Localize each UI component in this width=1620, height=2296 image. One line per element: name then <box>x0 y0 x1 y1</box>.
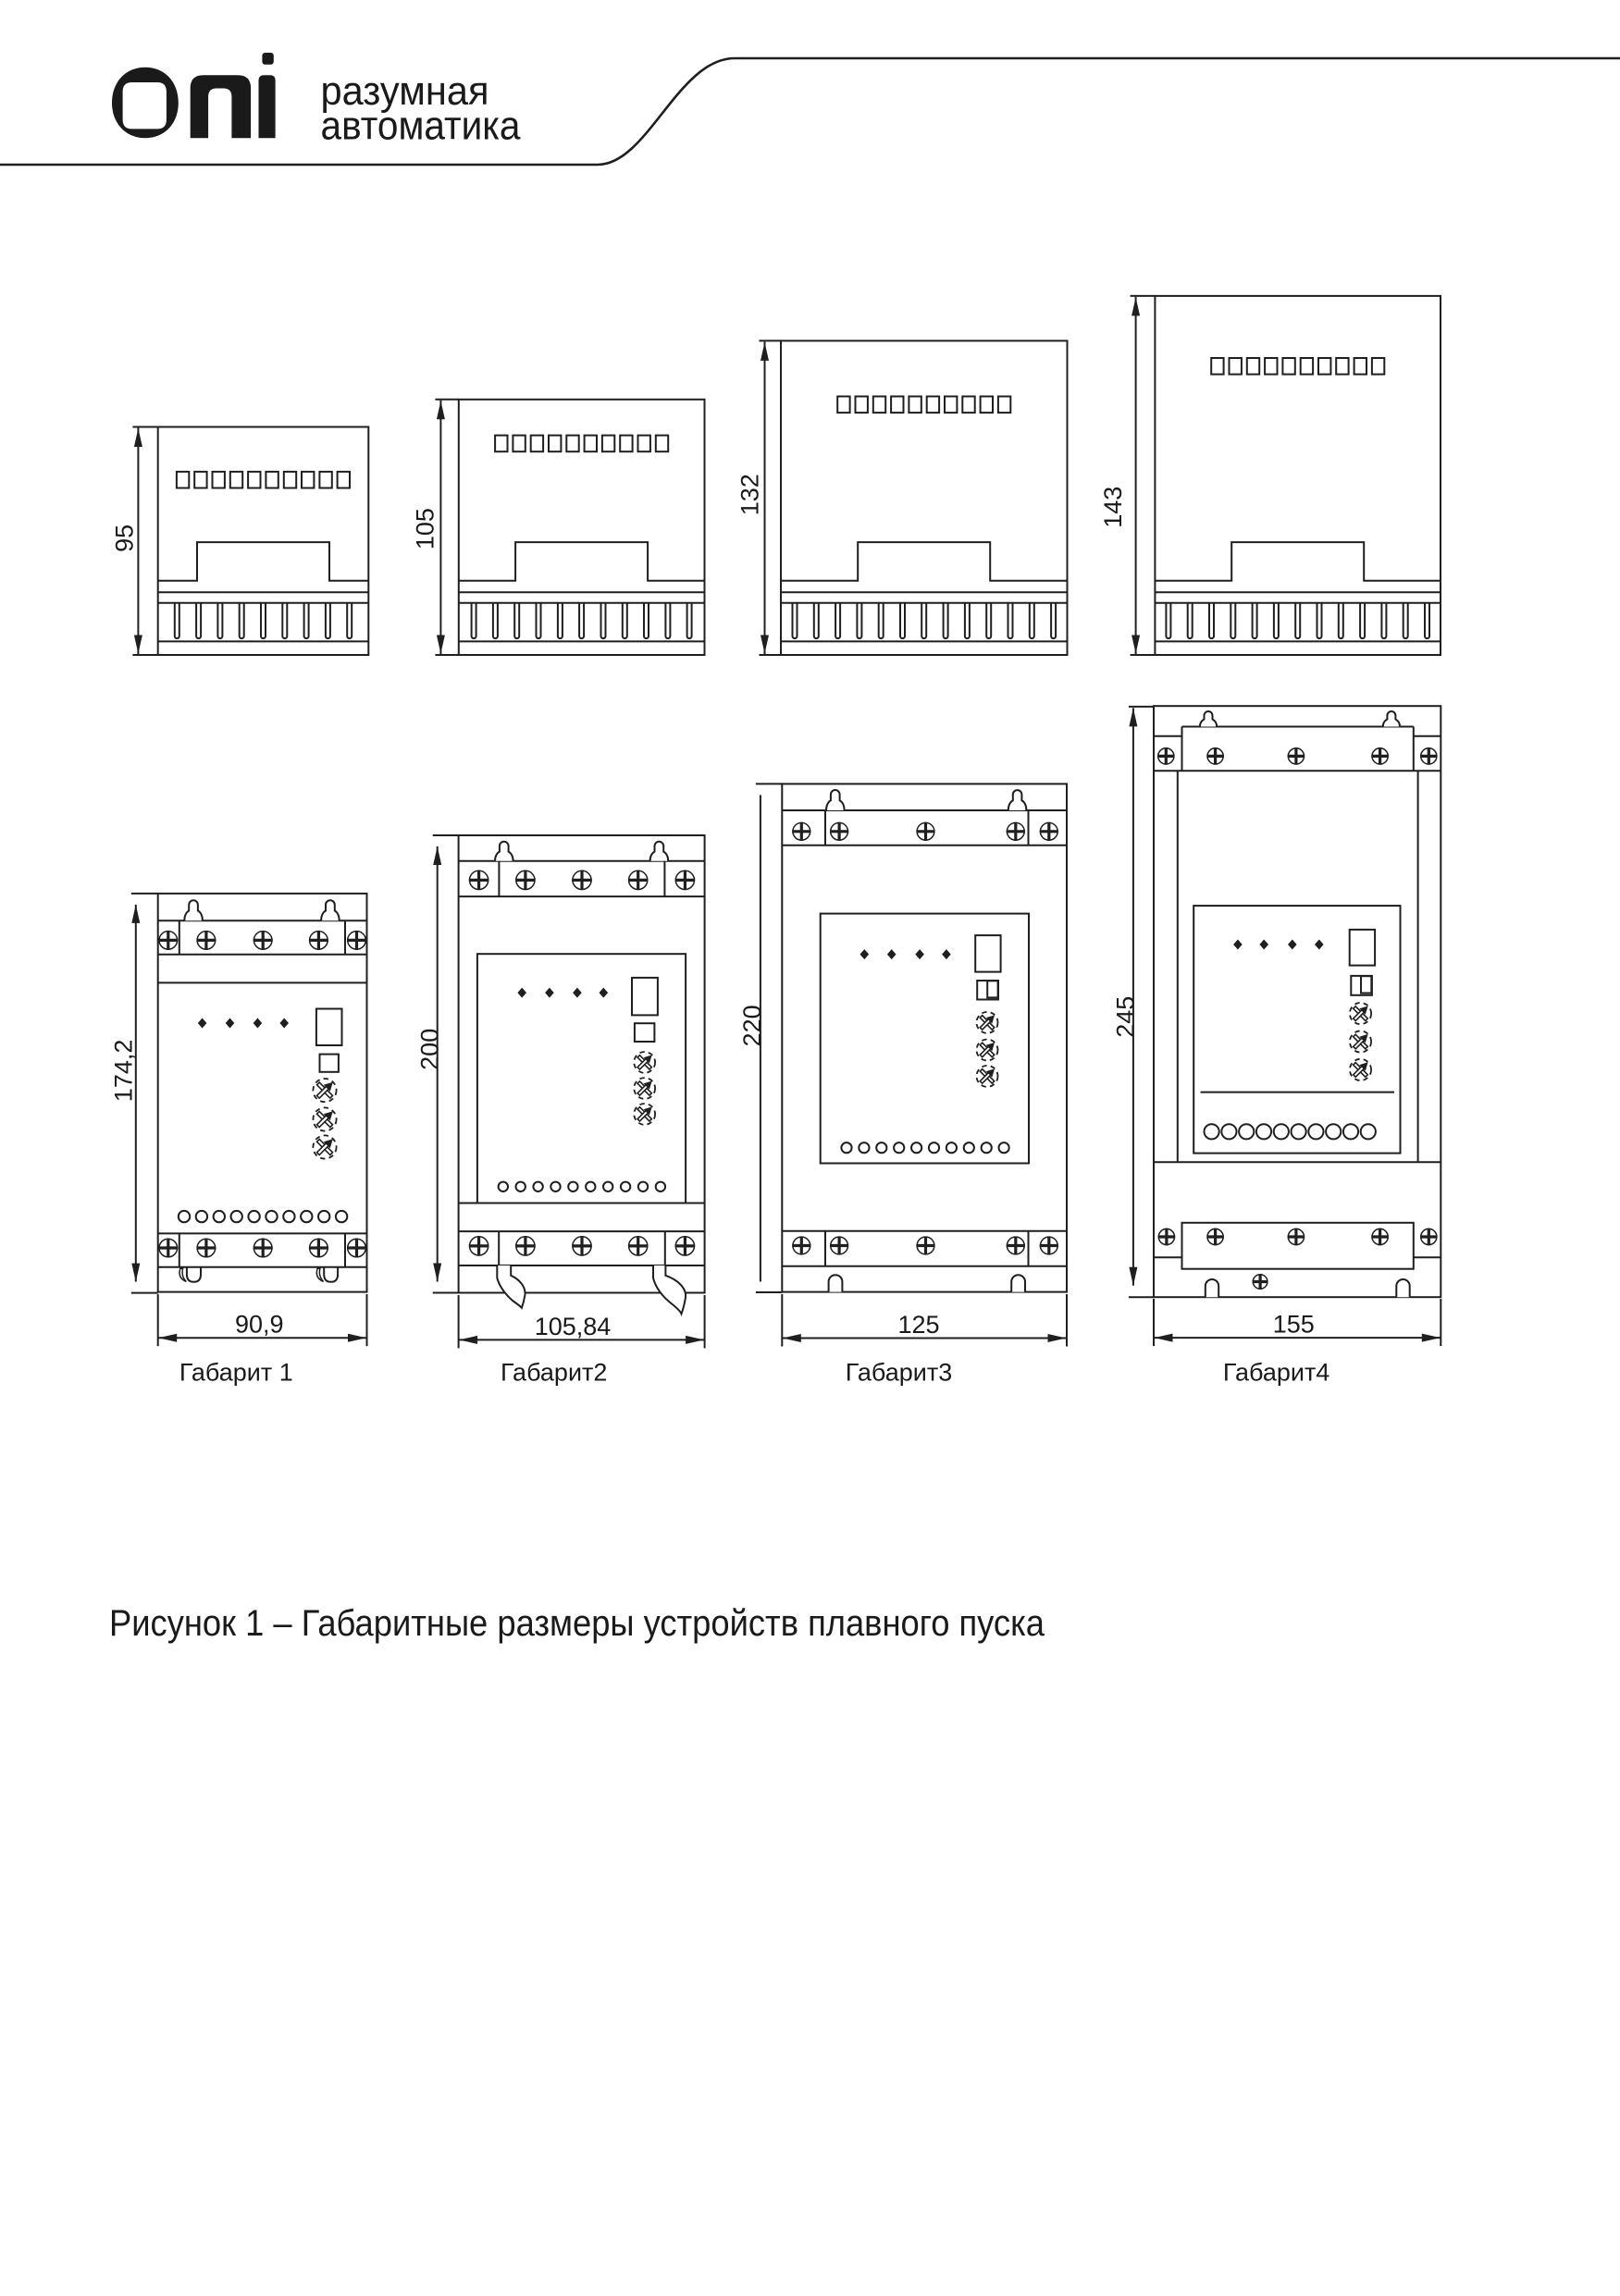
svg-text:95: 95 <box>110 525 138 552</box>
svg-text:105,84: 105,84 <box>535 1313 612 1340</box>
svg-text:90,9: 90,9 <box>235 1311 284 1339</box>
svg-text:200: 200 <box>416 1029 444 1070</box>
svg-text:Габарит3: Габарит3 <box>846 1359 952 1387</box>
svg-text:Габарит 1: Габарит 1 <box>179 1359 293 1387</box>
svg-text:155: 155 <box>1273 1311 1315 1339</box>
svg-text:Габарит4: Габарит4 <box>1223 1359 1329 1387</box>
svg-text:105: 105 <box>412 508 439 549</box>
svg-text:132: 132 <box>736 474 764 515</box>
svg-text:автоматика: автоматика <box>321 104 521 149</box>
svg-text:Рисунок 1 – Габаритные размеры: Рисунок 1 – Габаритные размеры устройств… <box>109 1603 1045 1644</box>
svg-text:143: 143 <box>1099 487 1127 528</box>
svg-text:220: 220 <box>738 1005 766 1046</box>
svg-text:174,2: 174,2 <box>110 1040 138 1103</box>
svg-text:125: 125 <box>897 1311 939 1339</box>
svg-text:Габарит2: Габарит2 <box>501 1359 607 1387</box>
svg-text:245: 245 <box>1111 996 1139 1038</box>
